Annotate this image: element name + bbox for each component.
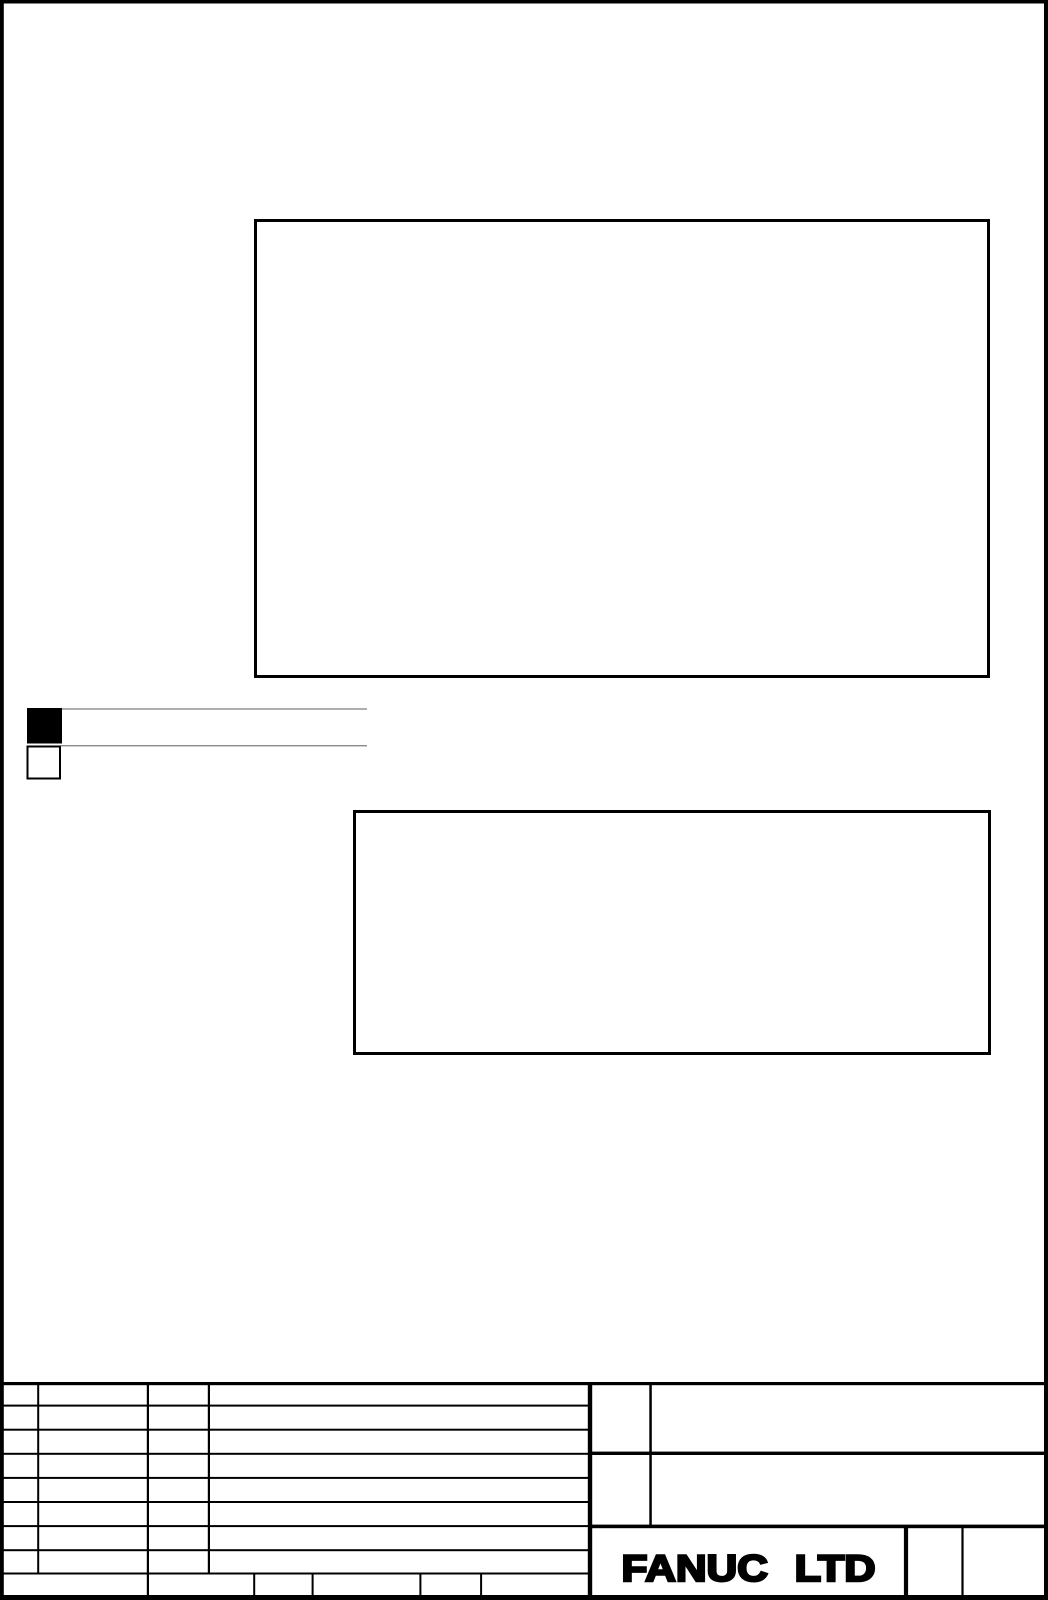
svg-text:FANUC: FANUC [622,1547,769,1589]
svg-text:LTD: LTD [795,1547,876,1589]
